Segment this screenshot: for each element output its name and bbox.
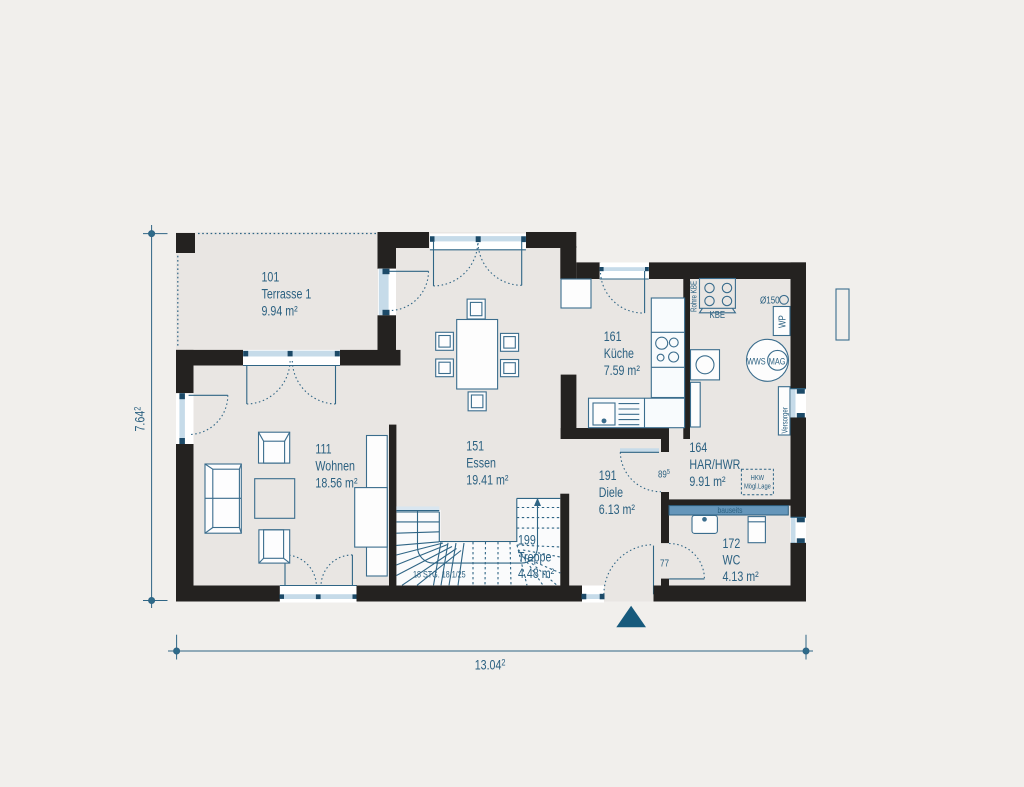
svg-text:9.94 m²: 9.94 m² bbox=[262, 303, 298, 319]
svg-text:18 STG. 18.1/25: 18 STG. 18.1/25 bbox=[413, 569, 466, 579]
svg-text:9.91 m²: 9.91 m² bbox=[689, 474, 725, 490]
svg-text:Treppe: Treppe bbox=[518, 549, 552, 565]
svg-text:Wohnen: Wohnen bbox=[315, 458, 355, 474]
svg-text:MAG: MAG bbox=[769, 355, 786, 366]
svg-text:7.59 m²: 7.59 m² bbox=[604, 363, 640, 379]
svg-text:101: 101 bbox=[262, 269, 280, 285]
svg-text:164: 164 bbox=[689, 440, 707, 456]
svg-text:bauseits: bauseits bbox=[718, 505, 743, 515]
svg-text:Rohre KBE: Rohre KBE bbox=[690, 281, 699, 312]
svg-text:191: 191 bbox=[599, 468, 617, 484]
svg-text:WC: WC bbox=[723, 552, 741, 568]
svg-text:151: 151 bbox=[466, 438, 484, 454]
svg-text:13.042: 13.042 bbox=[475, 657, 506, 673]
svg-text:HKW: HKW bbox=[751, 474, 765, 482]
svg-text:4.13 m²: 4.13 m² bbox=[723, 569, 759, 585]
svg-text:KBE: KBE bbox=[710, 309, 726, 320]
svg-text:161: 161 bbox=[604, 329, 622, 345]
svg-text:Essen: Essen bbox=[466, 455, 496, 471]
svg-text:172: 172 bbox=[723, 536, 741, 552]
svg-text:Versorger: Versorger bbox=[782, 407, 790, 434]
svg-text:Mögl.Lage: Mögl.Lage bbox=[744, 483, 771, 491]
svg-text:Terrasse 1: Terrasse 1 bbox=[262, 286, 312, 302]
svg-text:111: 111 bbox=[315, 441, 331, 457]
svg-text:WWS: WWS bbox=[747, 355, 766, 366]
svg-text:199: 199 bbox=[518, 532, 536, 548]
svg-text:WP: WP bbox=[777, 315, 788, 328]
svg-text:Diele: Diele bbox=[599, 485, 623, 501]
svg-text:Ø150: Ø150 bbox=[760, 294, 780, 305]
svg-text:77: 77 bbox=[660, 556, 669, 568]
svg-text:4.48 m²: 4.48 m² bbox=[518, 566, 554, 582]
svg-text:19.41 m²: 19.41 m² bbox=[466, 472, 508, 488]
svg-text:18.56 m²: 18.56 m² bbox=[315, 475, 357, 491]
svg-text:6.13 m²: 6.13 m² bbox=[599, 502, 635, 518]
svg-text:HAR/HWR: HAR/HWR bbox=[689, 457, 740, 473]
svg-text:Küche: Küche bbox=[604, 346, 634, 362]
